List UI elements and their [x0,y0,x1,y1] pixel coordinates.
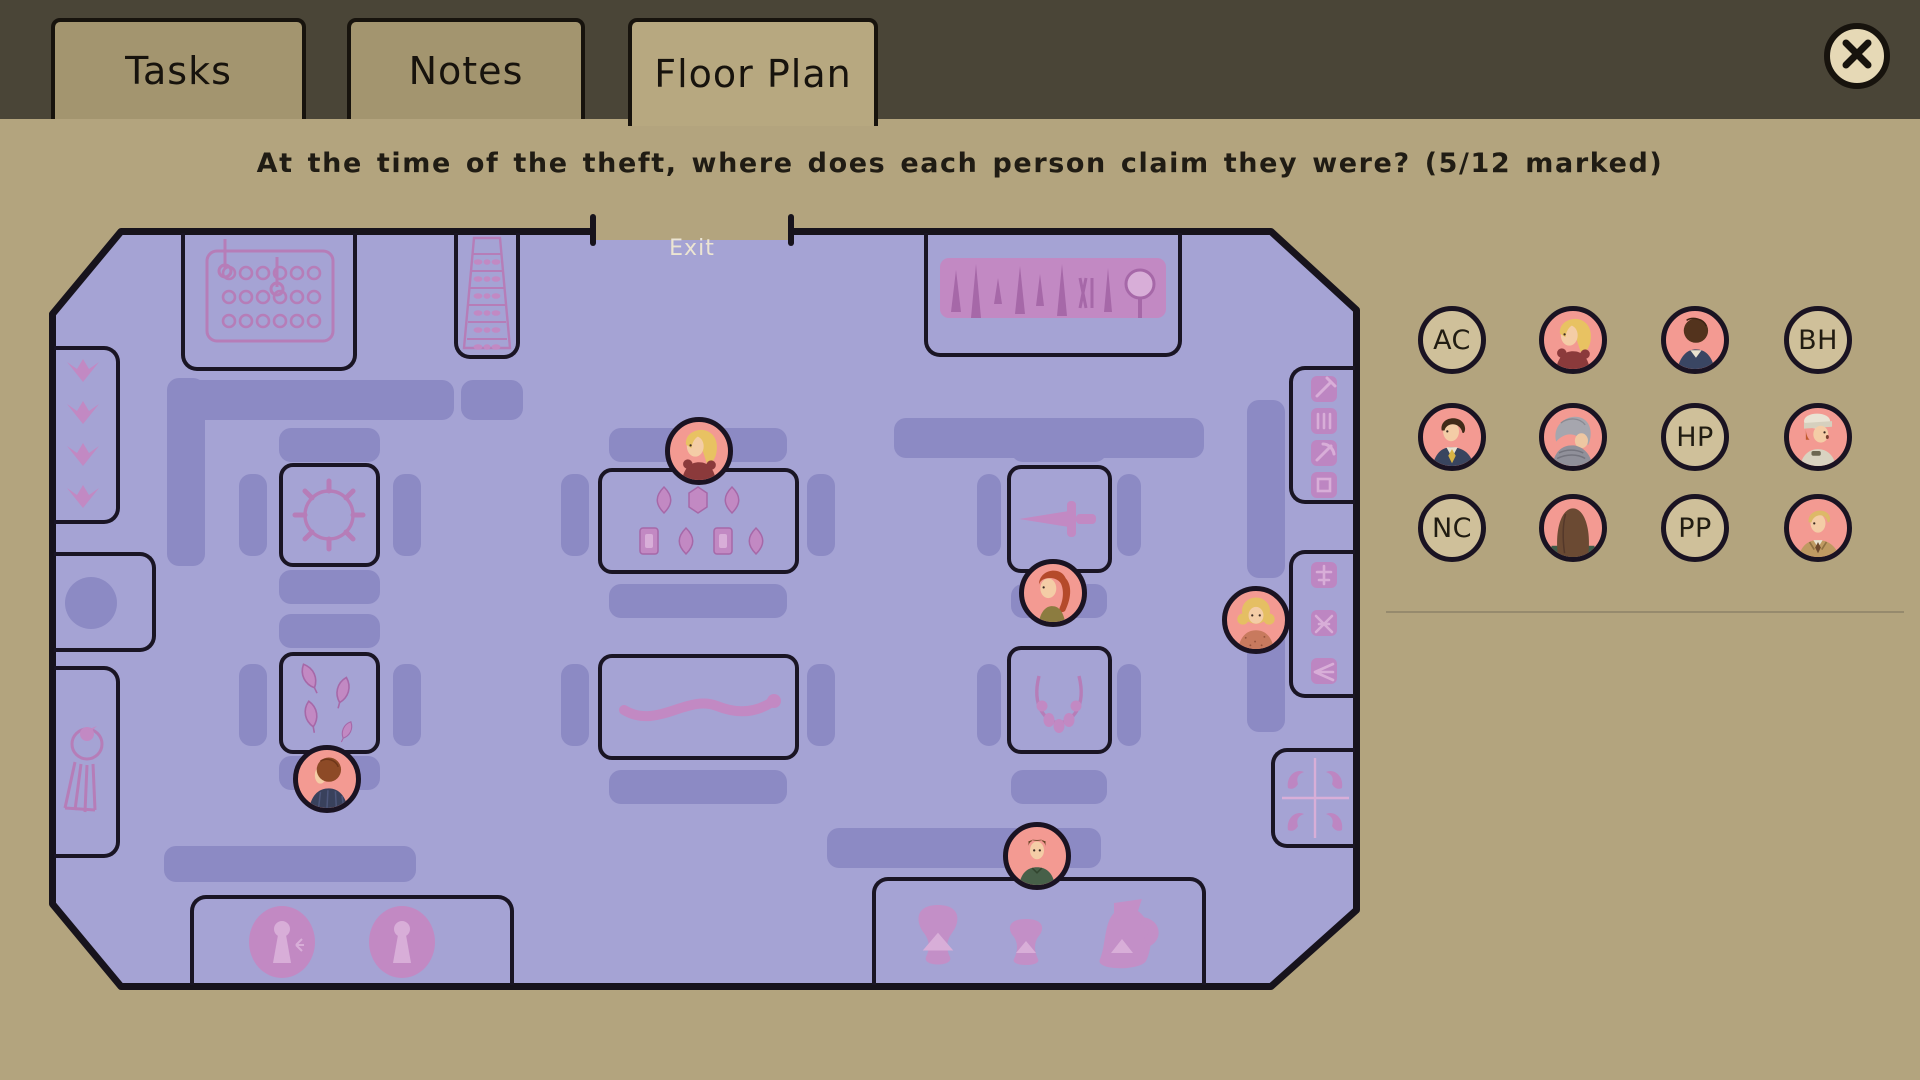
birdcarving-nook [1271,748,1355,848]
roster-token-darkhair-back[interactable] [1661,306,1729,374]
roster-token-ac[interactable]: AC [1418,306,1486,374]
map-token-redhead-ponytail[interactable] [1019,559,1087,627]
bench [609,770,787,804]
shelf-display-artwork [458,234,516,354]
roster-token-gray-elder[interactable] [1539,403,1607,471]
roster-token-brunette-back[interactable] [1539,494,1607,562]
tab-tasks[interactable]: Tasks [51,18,306,119]
floor-plan-map[interactable]: Exit [49,228,1360,990]
arrowhead-display [279,652,380,754]
tool-rack-nook-artwork [1295,370,1353,500]
bench [807,474,835,556]
close-icon [1840,37,1874,75]
exit-tick-right [788,214,794,246]
bench [393,474,421,556]
sun-display [279,463,380,567]
bench [239,664,267,746]
roster-initials: HP [1676,422,1714,453]
tab-notes[interactable]: Notes [347,18,585,119]
bird-nook [54,666,120,858]
roster-token-blonde-woman[interactable] [1539,306,1607,374]
tab-floor-plan[interactable]: Floor Plan [628,18,878,126]
roster-token-hp[interactable]: HP [1661,403,1729,471]
bench [977,664,1001,746]
bench [279,570,380,604]
roster-token-bh[interactable]: BH [1784,306,1852,374]
roster-token-blond-tan-suit[interactable] [1784,494,1852,562]
pottery-display [872,877,1206,985]
bench [279,428,380,462]
pottery-display-artwork [876,883,1202,983]
bench [561,664,589,746]
dagger-display [1007,465,1112,573]
snake-display-artwork [602,658,795,756]
bench [807,664,835,746]
bench [167,378,205,566]
bench [977,474,1001,556]
header-bar: TasksNotesFloor Plan [0,0,1920,119]
flower-nook [54,346,120,524]
map-token-blonde-curly[interactable] [1222,586,1290,654]
exit-label: Exit [632,236,752,261]
roster-initials: NC [1432,513,1472,544]
roster-token-darkhair-suit[interactable] [1418,403,1486,471]
bench [561,474,589,556]
bench [1011,428,1107,462]
roster-divider [1386,611,1904,613]
map-token-auburn-man-suit[interactable] [293,745,361,813]
coin-panel-display-artwork [185,235,353,365]
bird-nook-artwork [57,670,113,854]
necklace-display [1007,646,1112,754]
roster-initials: AC [1433,325,1471,356]
flower-nook-artwork [57,350,113,520]
birdcarving-nook-artwork [1276,752,1355,844]
jewel-display-artwork [602,472,795,570]
tools-display-artwork [928,234,1178,352]
bench [461,380,523,420]
necklace-display-artwork [1011,650,1108,750]
tool-rack-nook [1289,366,1355,504]
roster-token-redhead-cap[interactable] [1784,403,1852,471]
statue-nook [54,552,156,652]
dagger-display-artwork [1011,469,1108,569]
bench [279,614,380,648]
bench [1117,664,1141,746]
bench [239,474,267,556]
statue-nook-artwork [55,556,151,648]
close-button[interactable] [1824,23,1890,89]
sun-display-artwork [283,468,376,562]
roster-token-pp[interactable]: PP [1661,494,1729,562]
question-text: At the time of the theft, where does eac… [0,148,1920,179]
bench [164,846,416,882]
pin-rack-nook [1289,550,1355,698]
coin-panel-display [181,233,357,371]
roster-initials: PP [1678,513,1712,544]
arrowhead-display-artwork [283,656,376,750]
snake-display [598,654,799,760]
bench [609,584,787,618]
map-token-green-shirt[interactable] [1003,822,1071,890]
map-token-blonde-woman[interactable] [665,417,733,485]
bench [1011,770,1107,804]
bench [1117,474,1141,556]
pin-rack-nook-artwork [1295,554,1353,694]
tools-display [924,233,1182,357]
roster-initials: BH [1798,325,1838,356]
shelf-display [454,233,520,359]
bench [393,664,421,746]
bench [1247,400,1285,578]
medallion-display-artwork [194,901,510,983]
bench [184,380,454,420]
roster-token-nc[interactable]: NC [1418,494,1486,562]
exit-tick-left [590,214,596,246]
medallion-display [190,895,514,985]
